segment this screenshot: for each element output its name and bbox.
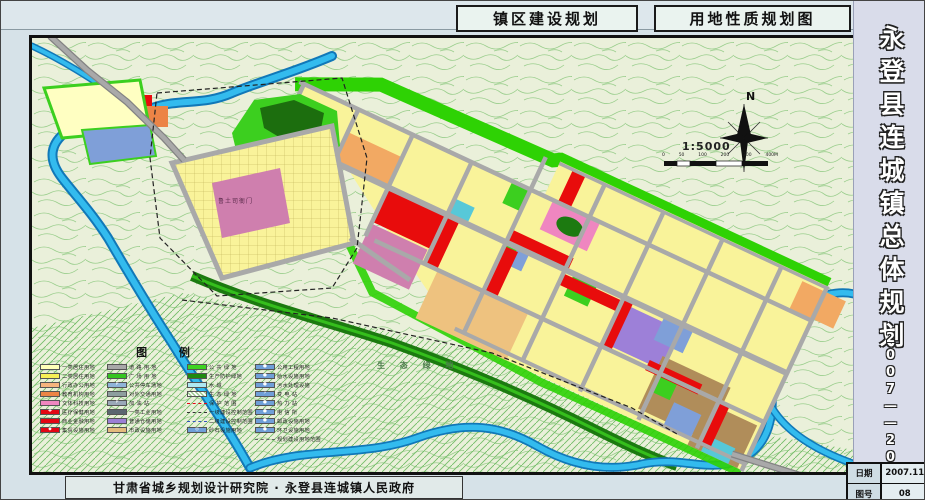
scale-tick: 0 (662, 153, 665, 158)
legend-label: 变 电 站 (277, 391, 297, 398)
legend-swatch: ⚡ (255, 391, 275, 397)
legend-label: 文体科技用地 (62, 400, 95, 407)
legend-label: 对外交通用地 (129, 391, 162, 398)
legend-label: 一类居住用地 (62, 364, 95, 371)
sheet-value: 08 (882, 484, 925, 500)
legend-item: P公共停车场地 (107, 382, 187, 388)
legend-label: 污水处理设施 (277, 382, 310, 389)
legend-label: 砂石设施用地 (209, 427, 242, 434)
legend-swatch: ● (255, 400, 275, 406)
legend-item: 一级建设控制范围 (187, 409, 255, 415)
legend-item: 保 护 范 围 (187, 400, 255, 406)
legend-item: ●公用工程用地 (255, 364, 355, 370)
info-table: 日期 2007.11 图号 08 (846, 462, 925, 500)
legend-swatch (187, 412, 207, 413)
scale-tick: 50 (679, 153, 685, 158)
legend-item: ●给水设施用地 (255, 373, 355, 379)
legend-item: 行政办公用地 (40, 382, 107, 388)
plan-sheet: 镇区建设规划 用地性质规划图 (0, 0, 925, 500)
legend-swatch: ◎ (187, 427, 207, 433)
legend-item: ◎砂石设施用地 (187, 427, 255, 433)
legend-swatch (107, 373, 127, 379)
legend-swatch (40, 400, 60, 406)
legend-swatch (187, 364, 207, 370)
legend-label: 一类工业用地 (129, 409, 162, 416)
legend-swatch: ● (255, 364, 275, 370)
date-value: 2007.11 (882, 464, 925, 483)
legend-item: ●污水处理设施 (255, 382, 355, 388)
sheet-label: 图号 (848, 484, 880, 500)
credit-box: 甘肃省城乡规划设计研究院 · 永登县连城镇人民政府 (65, 476, 463, 499)
legend-item: 生 态 绿 地 (187, 391, 255, 397)
legend-item: P加 油 站 (107, 400, 187, 406)
legend-swatch: ● (255, 382, 275, 388)
legend-label: 广 场 用 地 (129, 373, 157, 380)
legend-swatch (40, 364, 60, 370)
legend-item: 市政设施用地 (107, 427, 187, 433)
legend-swatch (107, 427, 127, 433)
legend-label: 二类居住用地 (62, 373, 95, 380)
legend-swatch (107, 409, 127, 415)
scale-tick: 300 (743, 153, 752, 158)
sidebar: 永登县连城镇总体规划 2007——2020 (853, 1, 925, 500)
legend-item: 商业金融用地 (40, 418, 107, 424)
legend-item: 教育机构用地 (40, 391, 107, 397)
legend-item: 水 域 (187, 382, 255, 388)
legend-swatch (187, 373, 207, 379)
legend-label: 普通仓储用地 (129, 418, 162, 425)
legend-label: 环卫设施用地 (277, 427, 310, 434)
legend-label: 电 信 所 (277, 409, 297, 416)
legend-swatch: ● (255, 418, 275, 424)
legend-swatch: P (107, 400, 127, 406)
legend-item: 规划建设用地范围 (255, 436, 355, 442)
legend-swatch: ● (255, 409, 275, 415)
legend-item: 一类工业用地 (107, 409, 187, 415)
legend-label: 公共停车场地 (129, 382, 162, 389)
legend-label: 教育机构用地 (62, 391, 95, 398)
legend-swatch (187, 421, 207, 422)
scale-ticks: 050100200300400M (662, 153, 778, 158)
legend-column: ●公用工程用地●给水设施用地●污水处理设施⚡变 电 站●热 力 站●电 信 所●… (255, 364, 355, 442)
legend-swatch (40, 382, 60, 388)
legend-item: 公 共 绿 地 (187, 364, 255, 370)
legend-label: 二级建设控制范围 (209, 418, 253, 425)
legend-label: 公用工程用地 (277, 364, 310, 371)
legend-item: ✚医疗保健用地 (40, 409, 107, 415)
legend-label: 医疗保健用地 (62, 409, 95, 416)
scale-bar (664, 161, 768, 166)
legend-swatch: ✚ (40, 409, 60, 415)
legend-item: ●热 力 站 (255, 400, 355, 406)
legend-swatch (40, 418, 60, 424)
legend-swatch: P (107, 382, 127, 388)
legend: 图 例 一类居住用地二类居住用地行政办公用地教育机构用地文体科技用地✚医疗保健用… (40, 344, 372, 442)
legend-label: 道 路 用 地 (129, 364, 157, 371)
legend-swatch (107, 418, 127, 424)
legend-label: 保 护 范 围 (209, 400, 237, 407)
legend-columns: 一类居住用地二类居住用地行政办公用地教育机构用地文体科技用地✚医疗保健用地商业金… (40, 364, 372, 442)
map-frame[interactable]: .ctr{fill:none;stroke:var(--contour);str… (29, 35, 857, 475)
legend-label: 公 共 绿 地 (209, 364, 237, 371)
legend-label: 生 态 绿 地 (209, 391, 237, 398)
legend-column: 一类居住用地二类居住用地行政办公用地教育机构用地文体科技用地✚医疗保健用地商业金… (40, 364, 107, 442)
sheet-title-series: 镇区建设规划 (456, 5, 638, 32)
scale-tick: 400M (765, 153, 777, 158)
legend-item: 广 场 用 地 (107, 373, 187, 379)
legend-swatch (40, 373, 60, 379)
legend-item: 一类居住用地 (40, 364, 107, 370)
legend-swatch (255, 439, 275, 440)
legend-label: 市政设施用地 (129, 427, 162, 434)
legend-label: 加 油 站 (129, 400, 149, 407)
legend-column: 公 共 绿 地生产防护绿地水 域生 态 绿 地保 护 范 围一级建设控制范围二级… (187, 364, 255, 442)
scale-tick: 100 (698, 153, 707, 158)
legend-item: ⚡变 电 站 (255, 391, 355, 397)
legend-label: 生产防护绿地 (209, 373, 242, 380)
legend-label: 集贸设施用地 (62, 427, 95, 434)
legend-item: 道 路 用 地 (107, 364, 187, 370)
legend-label: 一级建设控制范围 (209, 409, 253, 416)
legend-swatch: ● (255, 427, 275, 433)
legend-item: ●邮政设施用地 (255, 418, 355, 424)
scale-text: 1:5000 (682, 140, 731, 153)
legend-swatch: ◆ (40, 427, 60, 433)
legend-item: 二类居住用地 (40, 373, 107, 379)
legend-label: 行政办公用地 (62, 382, 95, 389)
legend-swatch (107, 364, 127, 370)
legend-item: 对外交通用地 (107, 391, 187, 397)
legend-item: 二级建设控制范围 (187, 418, 255, 424)
legend-label: 热 力 站 (277, 400, 297, 407)
legend-item: ●环卫设施用地 (255, 427, 355, 433)
legend-label: 水 域 (209, 382, 222, 389)
legend-swatch (40, 391, 60, 397)
legend-item: ●电 信 所 (255, 409, 355, 415)
legend-column: 道 路 用 地广 场 用 地P公共停车场地对外交通用地P加 油 站一类工业用地普… (107, 364, 187, 442)
north-label: N (746, 90, 755, 103)
scale-tick: 200 (721, 153, 730, 158)
legend-item: 文体科技用地 (40, 400, 107, 406)
plan-title-vertical: 永登县连城镇总体规划 (878, 25, 903, 355)
sheet-title-map: 用地性质规划图 (654, 5, 851, 32)
legend-label: 给水设施用地 (277, 373, 310, 380)
legend-swatch (187, 403, 207, 404)
yamen-label: 鲁土司衙门 (218, 196, 253, 205)
legend-swatch (187, 382, 207, 388)
legend-label: 规划建设用地范围 (277, 436, 321, 443)
legend-title: 图 例 (95, 344, 245, 360)
legend-swatch (187, 391, 207, 397)
legend-item: 普通仓储用地 (107, 418, 187, 424)
legend-item: 生产防护绿地 (187, 373, 255, 379)
legend-label: 邮政设施用地 (277, 418, 310, 425)
legend-label: 商业金融用地 (62, 418, 95, 425)
eco-green-label: 生 态 绿 地 (377, 360, 459, 371)
legend-swatch: ● (255, 373, 275, 379)
legend-swatch (107, 391, 127, 397)
date-label: 日期 (848, 464, 880, 483)
legend-item: ◆集贸设施用地 (40, 427, 107, 433)
